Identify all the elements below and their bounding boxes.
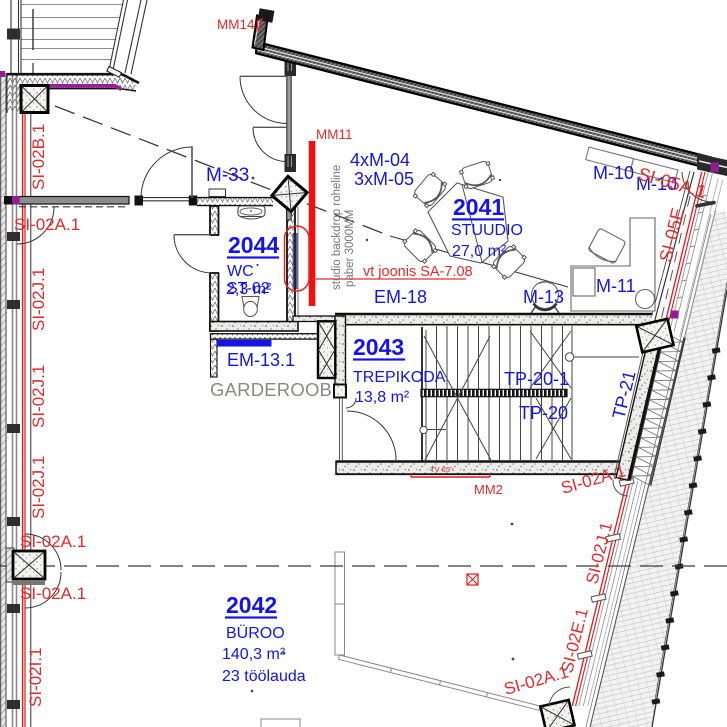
svg-text:2042: 2042	[226, 592, 277, 618]
svg-text:STUUDIO: STUUDIO	[451, 222, 523, 239]
svg-text:SI-02J.1: SI-02J.1	[29, 365, 48, 428]
svg-text:paber 3000MM: paber 3000MM	[344, 210, 356, 287]
svg-text:SI-02A.1: SI-02A.1	[20, 584, 86, 603]
svg-text:M-10: M-10	[593, 163, 634, 183]
svg-text:2041: 2041	[453, 194, 504, 220]
svg-text:TV 65": TV 65"	[430, 465, 453, 474]
svg-text:WC: WC	[227, 263, 254, 280]
svg-text:3xM-05: 3xM-05	[354, 169, 414, 189]
svg-text:SI-02J.1: SI-02J.1	[29, 456, 48, 519]
svg-text:2043: 2043	[353, 334, 404, 360]
svg-text:ST-02: ST-02	[227, 280, 270, 297]
svg-text:SI-02I.1: SI-02I.1	[26, 647, 45, 707]
svg-text:MM2: MM2	[474, 482, 503, 497]
svg-text:SI-02J.1: SI-02J.1	[29, 268, 48, 331]
svg-text:13,8 m²: 13,8 m²	[355, 389, 410, 406]
svg-text:23 töölauda: 23 töölauda	[222, 668, 306, 685]
svg-text:SI-02A.1: SI-02A.1	[20, 532, 86, 551]
svg-text:MM11: MM11	[316, 127, 353, 142]
svg-text:2044: 2044	[228, 232, 279, 258]
svg-text:TREPIKODA: TREPIKODA	[353, 369, 446, 386]
svg-text:4xM-04: 4xM-04	[350, 150, 410, 170]
svg-text:27,0 m²: 27,0 m²	[452, 243, 507, 260]
svg-text:EM-18: EM-18	[374, 287, 427, 307]
svg-text:140,3 m²: 140,3 m²	[222, 646, 286, 663]
svg-text:M-11: M-11	[596, 276, 636, 296]
svg-text:EM-13.1: EM-13.1	[227, 350, 295, 370]
svg-text:M-13: M-13	[523, 287, 564, 307]
svg-text:SI-02B.1: SI-02B.1	[29, 124, 48, 190]
svg-text:BÜROO: BÜROO	[226, 624, 285, 642]
svg-text:MM14: MM14	[217, 17, 255, 32]
svg-text:studio backdrop roheline: studio backdrop roheline	[331, 165, 343, 290]
svg-text:TP-20: TP-20	[519, 403, 568, 423]
svg-text:M-33: M-33	[206, 165, 249, 186]
svg-text:TP-20-1: TP-20-1	[504, 369, 569, 389]
svg-text:SI-02A.1: SI-02A.1	[14, 215, 80, 234]
svg-text:GARDEROOB: GARDEROOB	[210, 379, 332, 400]
svg-text:vt joonis SA-7.08: vt joonis SA-7.08	[363, 264, 473, 280]
